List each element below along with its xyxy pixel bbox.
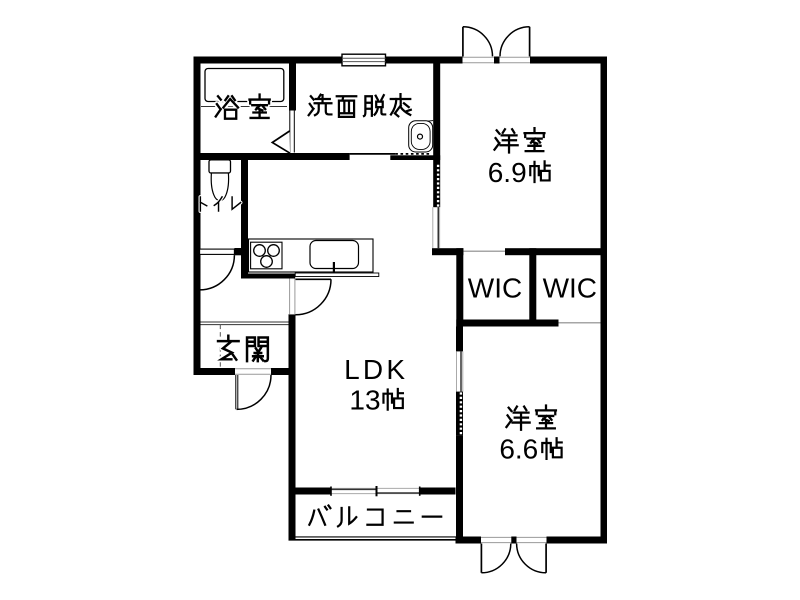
svg-text:WIC: WIC	[543, 273, 597, 304]
svg-text:6.9: 6.9	[488, 157, 527, 188]
svg-text:LDK: LDK	[344, 354, 408, 385]
svg-text:6.6: 6.6	[499, 433, 538, 464]
svg-text:WIC: WIC	[468, 273, 522, 304]
svg-text:13: 13	[349, 384, 380, 415]
